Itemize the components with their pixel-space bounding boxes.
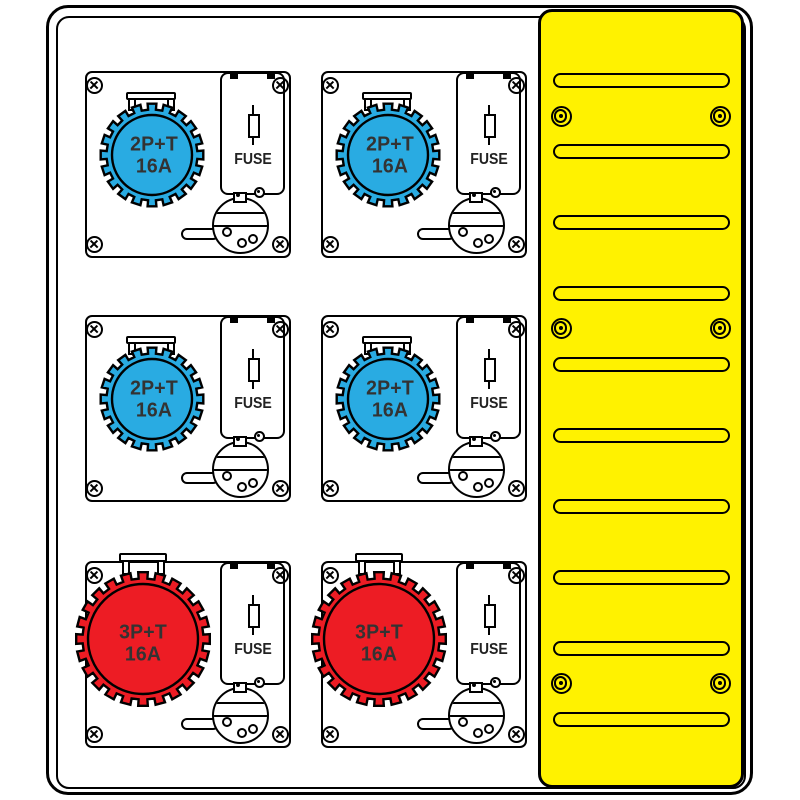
latch-dot-icon: [472, 193, 476, 197]
panel-screw-icon: [551, 106, 572, 127]
latch-dot-icon: [472, 683, 476, 687]
vent-slot: [553, 570, 730, 585]
fuse-panel-tab: [466, 73, 474, 79]
outlet-disc: [212, 441, 269, 498]
phillips-screw-icon: [322, 77, 339, 94]
vent-panel: [538, 9, 744, 788]
phillips-screw-icon: [86, 480, 103, 497]
pin-hole-icon: [484, 234, 494, 244]
rating-line1: 3P+T: [119, 622, 167, 644]
disc-band-line: [448, 702, 505, 704]
rating-line1: 2P+T: [366, 378, 414, 400]
pin-hole-icon: [484, 478, 494, 488]
vent-slot: [553, 215, 730, 230]
phillips-screw-icon: [322, 236, 339, 253]
phillips-screw-icon: [508, 480, 525, 497]
fuse-panel-tab: [466, 317, 474, 323]
disc-latch: [233, 436, 248, 447]
latch-dot-icon: [236, 683, 240, 687]
fuse-panel-tab: [503, 73, 511, 79]
socket-module-6: 3P+T 16A FUSE: [321, 561, 527, 748]
pin-hole-icon: [237, 482, 247, 492]
pin-hole-icon: [248, 724, 258, 734]
phillips-screw-icon: [86, 726, 103, 743]
latch-dot-icon: [236, 437, 240, 441]
panel-screw-icon: [710, 106, 731, 127]
fuse-label: FUSE: [470, 151, 508, 169]
socket-rating-label: 2P+T 16A: [366, 134, 414, 177]
rivet-screw-icon: [490, 431, 501, 442]
rivet-screw-icon: [254, 187, 265, 198]
socket-rating-label: 3P+T 16A: [119, 622, 167, 665]
vent-slot: [553, 144, 730, 159]
fuse-label: FUSE: [470, 395, 508, 413]
pin-hole-icon: [458, 471, 468, 481]
disc-band-line: [212, 225, 269, 227]
fuse-panel-tab: [230, 317, 238, 323]
phillips-screw-icon: [86, 236, 103, 253]
fuse-panel-tab: [267, 73, 275, 79]
fuse-symbol-body: [248, 358, 260, 382]
phillips-screw-icon: [86, 321, 103, 338]
fuse-symbol-body: [248, 114, 260, 138]
outlet-disc: [212, 687, 269, 744]
panel-screw-icon: [710, 673, 731, 694]
pin-hole-icon: [222, 227, 232, 237]
rating-line2: 16A: [366, 399, 414, 421]
disc-band-line: [212, 212, 269, 214]
outlet-disc: [212, 197, 269, 254]
fuse-label: FUSE: [470, 641, 508, 659]
fuse-symbol-body: [484, 114, 496, 138]
socket-rating-label: 2P+T 16A: [130, 134, 178, 177]
fuse-symbol-body: [248, 604, 260, 628]
rating-line2: 16A: [130, 155, 178, 177]
outlet-disc: [448, 687, 505, 744]
phillips-screw-icon: [322, 321, 339, 338]
socket-module-5: 3P+T 16A FUSE: [85, 561, 291, 748]
pin-hole-icon: [473, 238, 483, 248]
phillips-screw-icon: [508, 236, 525, 253]
latch-dot-icon: [472, 437, 476, 441]
panel-screw-icon: [551, 673, 572, 694]
lid-clip: [355, 553, 403, 562]
outlet-disc: [448, 441, 505, 498]
socket-rating-label: 2P+T 16A: [366, 378, 414, 421]
rating-line1: 3P+T: [355, 622, 403, 644]
rating-line2: 16A: [355, 643, 403, 665]
socket-module-1: 2P+T 16A FUSE: [85, 71, 291, 258]
fuse-label: FUSE: [234, 641, 272, 659]
disc-band-line: [448, 225, 505, 227]
rating-line1: 2P+T: [130, 378, 178, 400]
socket-module-4: 2P+T 16A FUSE: [321, 315, 527, 502]
rating-line2: 16A: [130, 399, 178, 421]
disc-band-line: [212, 456, 269, 458]
fuse-panel-tab: [503, 563, 511, 569]
rating-line1: 2P+T: [130, 134, 178, 156]
socket-module-3: 2P+T 16A FUSE: [85, 315, 291, 502]
socket-module-2: 2P+T 16A FUSE: [321, 71, 527, 258]
fuse-panel-tab: [230, 563, 238, 569]
fuse-panel-tab: [503, 317, 511, 323]
panel-screw-icon: [551, 318, 572, 339]
panel-screw-icon: [710, 318, 731, 339]
fuse-panel-tab: [267, 563, 275, 569]
vent-slot: [553, 499, 730, 514]
pin-hole-icon: [473, 728, 483, 738]
vent-slot: [553, 286, 730, 301]
disc-band-line: [448, 469, 505, 471]
socket-rating-label: 3P+T 16A: [355, 622, 403, 665]
rating-line1: 2P+T: [366, 134, 414, 156]
disc-latch: [233, 192, 248, 203]
rivet-screw-icon: [254, 431, 265, 442]
vent-slot: [553, 357, 730, 372]
rating-line2: 16A: [366, 155, 414, 177]
rating-line2: 16A: [119, 643, 167, 665]
outlet-disc: [448, 197, 505, 254]
pin-hole-icon: [222, 717, 232, 727]
phillips-screw-icon: [272, 236, 289, 253]
disc-band-line: [212, 702, 269, 704]
rivet-screw-icon: [490, 187, 501, 198]
vent-slot: [553, 641, 730, 656]
disc-latch: [469, 436, 484, 447]
pin-hole-icon: [458, 227, 468, 237]
disc-band-line: [448, 212, 505, 214]
pin-hole-icon: [484, 724, 494, 734]
disc-latch: [469, 682, 484, 693]
phillips-screw-icon: [508, 726, 525, 743]
fuse-symbol-body: [484, 358, 496, 382]
pin-hole-icon: [237, 728, 247, 738]
fuse-panel-tab: [230, 73, 238, 79]
fuse-symbol-body: [484, 604, 496, 628]
pin-hole-icon: [248, 234, 258, 244]
vent-slot: [553, 712, 730, 727]
lid-clip: [119, 553, 167, 562]
disc-band-line: [212, 715, 269, 717]
distribution-board-illustration: 2P+T 16A FUSE 2P+T: [0, 0, 800, 800]
pin-hole-icon: [222, 471, 232, 481]
disc-band-line: [448, 715, 505, 717]
disc-band-line: [212, 469, 269, 471]
vent-slot: [553, 428, 730, 443]
phillips-screw-icon: [322, 726, 339, 743]
socket-rating-label: 2P+T 16A: [130, 378, 178, 421]
pin-hole-icon: [458, 717, 468, 727]
rivet-screw-icon: [490, 677, 501, 688]
phillips-screw-icon: [322, 480, 339, 497]
phillips-screw-icon: [272, 726, 289, 743]
vent-slot: [553, 73, 730, 88]
fuse-label: FUSE: [234, 395, 272, 413]
disc-latch: [233, 682, 248, 693]
rivet-screw-icon: [254, 677, 265, 688]
pin-hole-icon: [248, 478, 258, 488]
disc-latch: [469, 192, 484, 203]
fuse-panel-tab: [466, 563, 474, 569]
pin-hole-icon: [237, 238, 247, 248]
phillips-screw-icon: [272, 480, 289, 497]
latch-dot-icon: [236, 193, 240, 197]
pin-hole-icon: [473, 482, 483, 492]
fuse-panel-tab: [267, 317, 275, 323]
fuse-label: FUSE: [234, 151, 272, 169]
phillips-screw-icon: [86, 77, 103, 94]
disc-band-line: [448, 456, 505, 458]
